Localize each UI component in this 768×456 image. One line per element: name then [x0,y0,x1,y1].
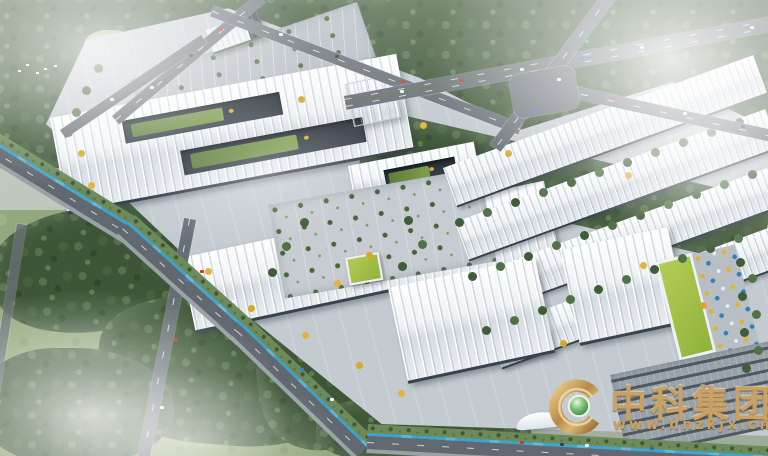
logo-c-icon [546,376,608,438]
haze-veil-top [0,0,768,150]
fog-bottom-center [40,370,340,456]
logo-green-sphere-icon [569,396,589,416]
aerial-industrial-park-rendering: 中科集团 www.hnzkjx.cn [0,0,768,456]
green-roof-pavilion [345,252,383,285]
website-url: www.hnzkjx.cn [613,417,768,433]
company-watermark: 中科集团 www.hnzkjx.cn [546,370,768,442]
